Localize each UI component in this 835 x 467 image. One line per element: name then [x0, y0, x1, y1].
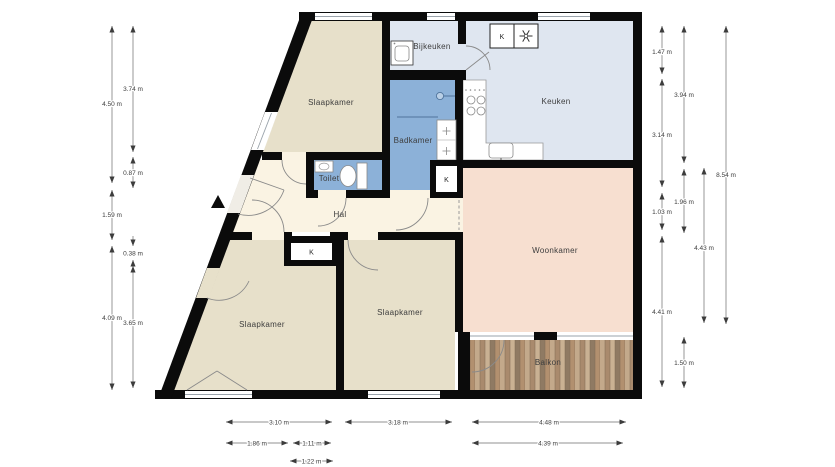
room-label-woonkamer: Woonkamer — [532, 246, 578, 255]
wall-segment — [306, 152, 390, 160]
closet-hall: K — [430, 160, 463, 198]
wall-segment — [455, 232, 463, 332]
dimensions-left: 4.50 m 1.59 m 4.09 m 3.74 m 0.87 m 0.38 … — [102, 26, 143, 390]
closet-kitchen: K — [490, 24, 514, 48]
dimension-label: 1.22 m — [302, 459, 322, 466]
dimension-label: 3.74 m — [123, 86, 143, 93]
room-label-slaapkamer-bottomleft: Slaapkamer — [239, 320, 285, 329]
closet-label: K — [309, 250, 314, 257]
floorplan-canvas: K K K Slaapkamer Bijkeuken Keuken Badkam… — [0, 0, 835, 467]
dimension-label: 4.43 m — [694, 245, 714, 252]
north-arrow-icon — [211, 195, 225, 208]
closet-label: K — [500, 34, 505, 41]
dimension-label: 4.50 m — [102, 101, 122, 108]
room-label-slaapkamer-bottommid: Slaapkamer — [377, 308, 423, 317]
washing-machine-icon — [391, 41, 413, 65]
dimension-label: 1.47 m — [652, 49, 672, 56]
room-label-hal: Hal — [334, 210, 347, 219]
room-label-keuken: Keuken — [542, 97, 571, 106]
window — [538, 13, 590, 20]
dimension-label: 0.38 m — [123, 251, 143, 258]
dimension-label: 4.48 m — [539, 420, 559, 427]
wall-right — [633, 12, 642, 399]
wall-segment — [458, 332, 470, 399]
wall-segment — [455, 160, 633, 168]
window — [368, 391, 440, 398]
closet-label: K — [444, 177, 449, 184]
wall-segment — [382, 21, 390, 198]
room-label-balkon: Balkon — [535, 358, 561, 367]
dimension-label: 4.39 m — [538, 441, 558, 448]
wall-segment — [534, 332, 557, 340]
floorplan-svg: K K K Slaapkamer Bijkeuken Keuken Badkam… — [0, 0, 835, 467]
dimension-label: 3.65 m — [123, 320, 143, 327]
closet-bedroom: K — [284, 236, 338, 266]
wall-segment — [382, 70, 466, 80]
dimension-label: 3.10 m — [269, 420, 289, 427]
dimension-label: 4.09 m — [102, 315, 122, 322]
window-balcony — [557, 332, 633, 340]
wall-segment — [458, 21, 466, 44]
room-label-slaapkamer-topleft: Slaapkamer — [308, 98, 354, 107]
toilet-washbasin-icon — [315, 161, 333, 172]
room-label-toilet: Toilet — [319, 174, 340, 183]
window-balcony — [470, 332, 534, 340]
dimension-label: 0.87 m — [123, 170, 143, 177]
dimension-label: 1.03 m — [652, 209, 672, 216]
dimensions-bottom: 3.10 m 3.18 m 4.48 m 1.86 m 1.11 m 4.39 … — [226, 420, 626, 466]
dimension-label: 1.11 m — [302, 441, 321, 448]
wall-segment — [378, 232, 463, 240]
dimensions-right: 1.47 m 3.14 m 1.03 m 4.41 m 3.94 m 1.96 … — [652, 26, 736, 388]
window — [427, 13, 455, 20]
room-label-badkamer: Badkamer — [394, 136, 433, 145]
dimension-label: 1.86 m — [247, 441, 267, 448]
dimension-label: 1.59 m — [102, 212, 122, 219]
wall-segment — [262, 152, 282, 160]
dimension-label: 1.96 m — [674, 199, 694, 206]
dimension-label: 3.94 m — [674, 92, 694, 99]
window — [315, 13, 372, 20]
dimension-label: 4.41 m — [652, 309, 672, 316]
dimension-label: 1.50 m — [674, 360, 694, 367]
dimension-label: 3.18 m — [388, 420, 408, 427]
window — [185, 391, 252, 398]
room-label-bijkeuken: Bijkeuken — [413, 42, 450, 51]
double-washbasin-icon — [437, 120, 456, 160]
dimension-label: 8.54 m — [716, 172, 736, 179]
dimension-label: 3.14 m — [652, 132, 672, 139]
ventilation-icon — [514, 24, 538, 48]
